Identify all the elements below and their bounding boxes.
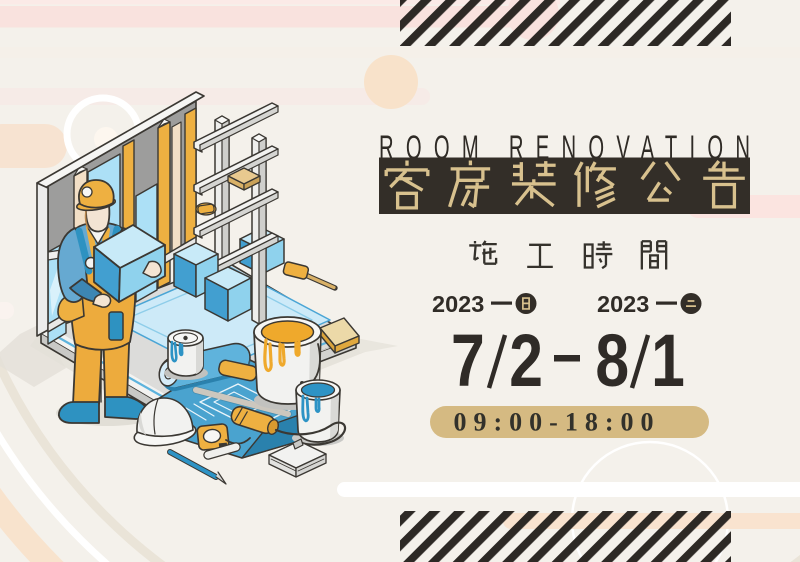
svg-text:1: 1 bbox=[651, 320, 685, 402]
svg-text:09:00-18:00: 09:00-18:00 bbox=[454, 408, 661, 437]
svg-text:8: 8 bbox=[595, 320, 629, 402]
svg-text:2: 2 bbox=[509, 320, 543, 402]
svg-text:2023: 2023 bbox=[597, 291, 649, 317]
svg-text:7: 7 bbox=[451, 320, 485, 402]
svg-text:2023: 2023 bbox=[432, 291, 484, 317]
